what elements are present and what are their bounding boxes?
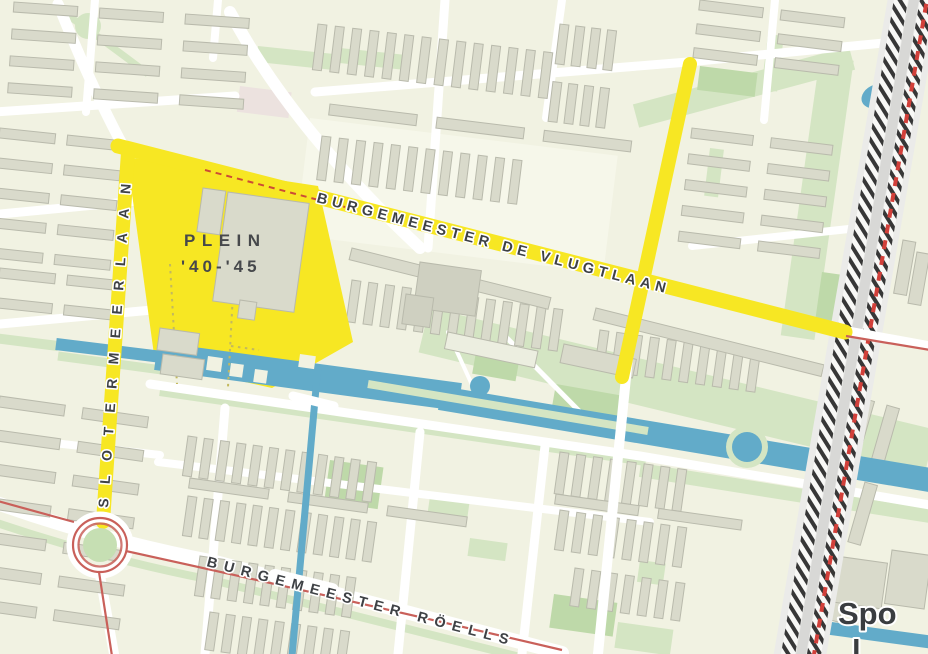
building <box>213 192 310 312</box>
place-label-plein: PLEIN <box>184 231 267 250</box>
corner-label-partial: l <box>852 633 861 654</box>
building <box>402 294 434 328</box>
place-label-4045: '40-'45 <box>181 257 261 276</box>
canal-bulge <box>732 432 762 462</box>
park-pond <box>470 376 490 396</box>
building <box>298 354 316 369</box>
map-viewport[interactable]: PLEIN '40-'45 BURGEMEESTER DE VLUGTLAAN … <box>0 0 928 654</box>
map-canvas: PLEIN '40-'45 BURGEMEESTER DE VLUGTLAAN … <box>0 0 928 654</box>
building <box>229 363 244 378</box>
building <box>253 369 268 384</box>
corner-label-spo: Spo <box>838 596 897 631</box>
building <box>237 300 256 320</box>
building <box>206 356 223 372</box>
